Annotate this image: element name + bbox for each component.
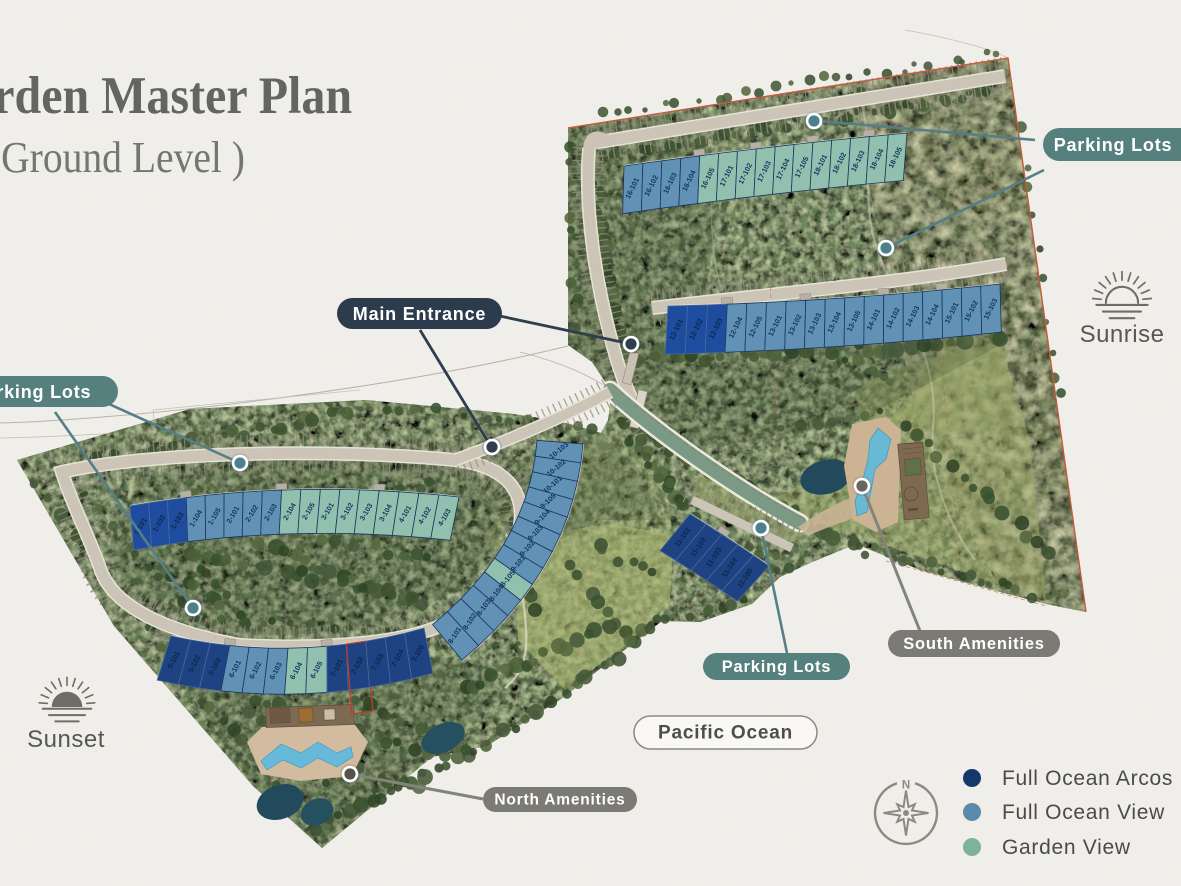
- svg-text:North Amenities: North Amenities: [494, 792, 625, 809]
- svg-text:South Amenities: South Amenities: [903, 635, 1045, 653]
- svg-text:Pacific Ocean: Pacific Ocean: [658, 723, 793, 744]
- svg-text:Parking Lots: Parking Lots: [0, 382, 91, 402]
- svg-text:Garden View: Garden View: [1002, 836, 1131, 859]
- svg-text:Parking Lots: Parking Lots: [722, 658, 832, 676]
- svg-text:Full Ocean View: Full Ocean View: [1002, 801, 1165, 824]
- svg-text:Main Entrance: Main Entrance: [353, 304, 486, 324]
- svg-text:N: N: [902, 780, 910, 792]
- svg-text:Garden Master Plan: Garden Master Plan: [0, 67, 352, 125]
- svg-text:Full Ocean Arcos: Full Ocean Arcos: [1002, 767, 1173, 790]
- svg-text:( Ground Level ): ( Ground Level ): [0, 133, 245, 182]
- svg-text:Parking Lots: Parking Lots: [1054, 135, 1173, 155]
- svg-text:Sunrise: Sunrise: [1080, 321, 1165, 348]
- svg-text:Sunset: Sunset: [27, 726, 105, 753]
